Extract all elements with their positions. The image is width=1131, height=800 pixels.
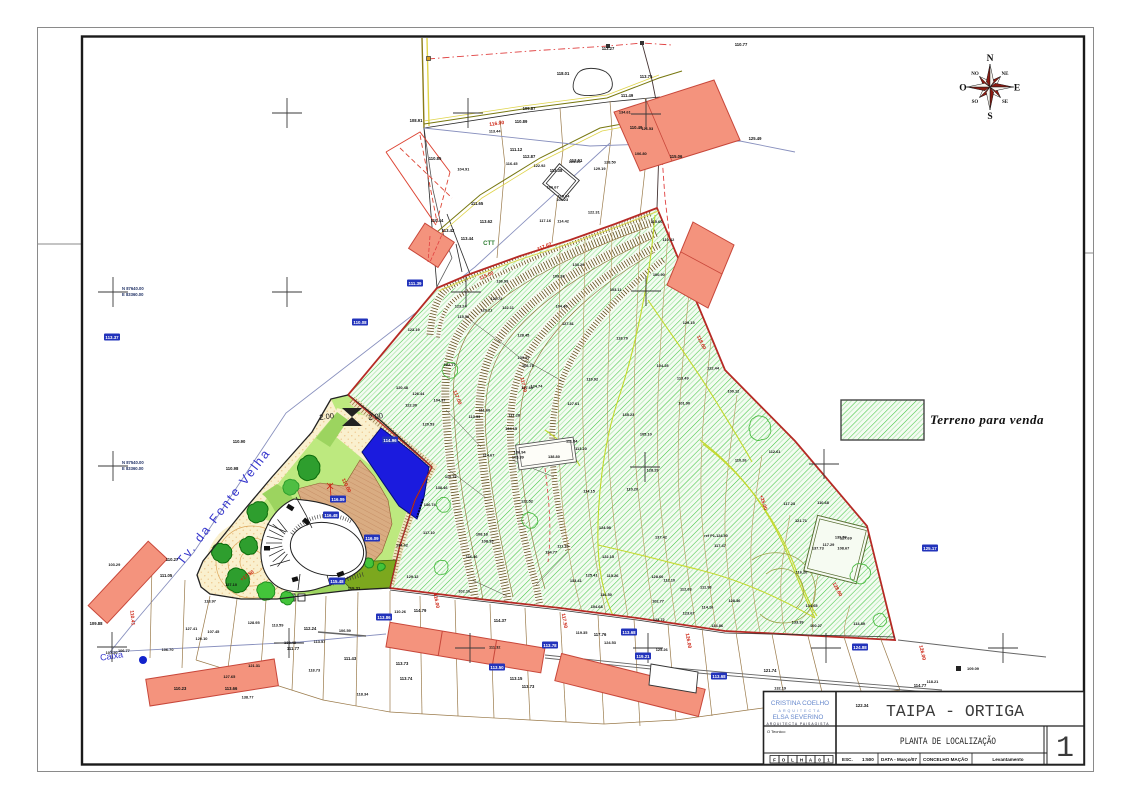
svg-text:122.34: 122.34 (856, 703, 869, 708)
svg-text:116.50: 116.50 (600, 592, 612, 597)
svg-text:113.15: 113.15 (510, 676, 523, 681)
svg-text:110.49: 110.49 (630, 125, 643, 130)
svg-text:113.38: 113.38 (550, 168, 563, 173)
svg-text:105.39: 105.39 (512, 454, 525, 459)
svg-text:122.15: 122.15 (602, 554, 615, 559)
svg-text:116.09: 116.09 (331, 497, 345, 502)
svg-text:113.37: 113.37 (105, 335, 119, 340)
svg-text:114.67: 114.67 (483, 452, 495, 457)
svg-text:113.42: 113.42 (442, 228, 455, 233)
svg-text:108.35: 108.35 (482, 538, 495, 543)
svg-text:Terreno para venda: Terreno para venda (930, 412, 1044, 427)
svg-text:104.68: 104.68 (591, 604, 604, 609)
svg-text:104.40: 104.40 (556, 304, 568, 309)
svg-text:120.72: 120.72 (490, 296, 503, 301)
svg-text:O: O (959, 84, 966, 94)
svg-text:117.16: 117.16 (539, 218, 552, 223)
svg-text:113.86: 113.86 (377, 615, 391, 620)
svg-text:134.61: 134.61 (619, 110, 632, 115)
svg-text:113.78: 113.78 (543, 643, 557, 648)
svg-text:107.45: 107.45 (207, 629, 220, 634)
svg-text:104.37: 104.37 (434, 397, 446, 402)
svg-text:112.63: 112.63 (680, 586, 693, 591)
svg-text:110.89: 110.89 (515, 119, 528, 124)
svg-text:120.21: 120.21 (480, 307, 493, 312)
svg-text:106.67: 106.67 (547, 185, 559, 190)
svg-text:100.90: 100.90 (653, 272, 665, 277)
svg-text:138.80: 138.80 (548, 454, 560, 459)
svg-text:113.74: 113.74 (400, 676, 413, 681)
svg-text:128.95: 128.95 (248, 620, 261, 625)
svg-text:135.23: 135.23 (622, 412, 635, 417)
svg-text:134.77: 134.77 (545, 550, 557, 555)
svg-text:CRISTINA COELHO: CRISTINA COELHO (771, 700, 829, 707)
svg-text:111.43: 111.43 (344, 656, 357, 661)
svg-text:133.48: 133.48 (284, 640, 297, 645)
svg-text:Levantamento: Levantamento (992, 757, 1023, 762)
svg-text:138.77: 138.77 (242, 695, 254, 700)
svg-text:110.26: 110.26 (735, 458, 748, 463)
svg-text:111.65: 111.65 (471, 201, 484, 206)
svg-text:ref P1-124.50: ref P1-124.50 (704, 534, 727, 538)
svg-text:128.60: 128.60 (651, 574, 663, 579)
svg-text:114.15: 114.15 (583, 488, 596, 493)
svg-text:109.88: 109.88 (90, 621, 103, 626)
svg-text:110.20: 110.20 (626, 487, 638, 492)
svg-text:114.96: 114.96 (383, 438, 397, 443)
svg-text:111.05: 111.05 (160, 573, 173, 578)
svg-text:114.37: 114.37 (494, 618, 507, 623)
svg-text:100.27: 100.27 (810, 623, 822, 628)
svg-text:105.10: 105.10 (640, 432, 652, 437)
svg-text:102.77: 102.77 (652, 598, 664, 603)
svg-text:110.90: 110.90 (233, 439, 246, 444)
svg-text:122.31: 122.31 (588, 209, 601, 214)
svg-text:122.44: 122.44 (707, 366, 720, 371)
svg-text:108.78: 108.78 (522, 363, 535, 368)
svg-text:1: 1 (1056, 732, 1074, 766)
svg-text:F: F (773, 758, 776, 763)
svg-text:115.26: 115.26 (607, 573, 620, 578)
svg-text:110.42: 110.42 (663, 237, 676, 242)
svg-text:124.98: 124.98 (599, 525, 612, 530)
svg-text:DATA - Março/07: DATA - Março/07 (881, 757, 917, 762)
svg-text:111.98: 111.98 (700, 585, 712, 590)
svg-text:127.81: 127.81 (562, 321, 575, 326)
svg-text:ESC.: ESC. (842, 757, 853, 762)
svg-text:127.69: 127.69 (840, 536, 853, 541)
svg-text:118.01: 118.01 (557, 71, 570, 76)
svg-text:138.46: 138.46 (436, 485, 449, 490)
svg-text:121.74: 121.74 (764, 668, 777, 673)
svg-text:128.36: 128.36 (728, 598, 741, 603)
svg-text:NO: NO (971, 72, 979, 77)
svg-text:134.15: 134.15 (505, 426, 518, 431)
svg-text:111.12: 111.12 (510, 147, 523, 152)
svg-text:116.45: 116.45 (506, 161, 519, 166)
svg-text:133.39: 133.39 (792, 620, 805, 625)
svg-text:113.62: 113.62 (480, 219, 493, 224)
svg-text:129.19: 129.19 (594, 166, 607, 171)
svg-text:111.77: 111.77 (287, 646, 300, 651)
svg-text:110.26: 110.26 (394, 609, 407, 614)
svg-text:113.49: 113.49 (677, 376, 690, 381)
svg-text:113.27: 113.27 (602, 46, 615, 51)
svg-text:E: E (1014, 84, 1020, 94)
svg-text:111.49: 111.49 (621, 93, 634, 98)
svg-text:110.27: 110.27 (166, 557, 179, 562)
svg-text:127.60: 127.60 (521, 385, 533, 390)
svg-text:134.65: 134.65 (806, 603, 819, 608)
svg-text:115.64: 115.64 (558, 194, 571, 199)
svg-text:102.10: 102.10 (458, 589, 470, 594)
svg-text:118.70: 118.70 (616, 335, 628, 340)
svg-text:127.65: 127.65 (223, 674, 236, 679)
svg-text:1:500: 1:500 (862, 757, 874, 762)
svg-text:104.25: 104.25 (657, 363, 670, 368)
svg-text:L: L (791, 758, 794, 763)
svg-text:112.61: 112.61 (769, 449, 782, 454)
svg-text:112.87: 112.87 (523, 154, 536, 159)
svg-text:113.44: 113.44 (461, 236, 474, 241)
svg-text:N 87640.00: N 87640.00 (122, 286, 144, 291)
svg-text:128.50: 128.50 (604, 160, 616, 165)
svg-text:116.20: 116.20 (796, 570, 808, 575)
svg-text:123.67: 123.67 (683, 610, 695, 615)
svg-text:113.73: 113.73 (522, 684, 535, 689)
svg-text:N: N (987, 54, 994, 64)
svg-text:114.16: 114.16 (702, 604, 715, 609)
svg-text:137.42: 137.42 (655, 534, 668, 539)
svg-text:NE: NE (1002, 72, 1010, 77)
svg-text:119.35: 119.35 (576, 630, 589, 635)
svg-text:122.11: 122.11 (502, 305, 515, 310)
svg-text:115.60: 115.60 (651, 219, 663, 224)
svg-text:126.53: 126.53 (641, 126, 654, 131)
svg-text:126.44: 126.44 (412, 391, 425, 396)
svg-text:124.88: 124.88 (853, 645, 867, 650)
svg-text:120.48: 120.48 (396, 385, 409, 390)
svg-text:110.44: 110.44 (431, 218, 444, 223)
svg-text:128.45: 128.45 (517, 333, 530, 338)
svg-text:SO: SO (972, 100, 979, 105)
svg-text:112.24: 112.24 (304, 626, 317, 631)
svg-text:110.98: 110.98 (226, 466, 239, 471)
svg-text:113.51: 113.51 (570, 158, 583, 163)
svg-text:114.77: 114.77 (914, 683, 927, 688)
svg-text:106.70: 106.70 (162, 647, 174, 652)
svg-text:ELSA SEVERINO: ELSA SEVERINO (773, 714, 824, 721)
svg-text:122.77: 122.77 (444, 362, 456, 367)
svg-text:117.76: 117.76 (594, 632, 607, 637)
svg-text:133.20: 133.20 (572, 262, 584, 267)
svg-text:111.32: 111.32 (489, 645, 501, 650)
svg-text:103.11: 103.11 (610, 287, 623, 292)
svg-text:120.10: 120.10 (196, 636, 208, 641)
svg-text:O Tecnico:: O Tecnico: (767, 729, 786, 734)
svg-text:103.29: 103.29 (108, 562, 121, 567)
svg-text:113.44: 113.44 (489, 128, 502, 133)
svg-text:115.06: 115.06 (670, 154, 683, 159)
svg-text:139.97: 139.97 (518, 355, 530, 360)
svg-text:122.92: 122.92 (534, 163, 547, 168)
svg-text:TAIPA - ORTIGA: TAIPA - ORTIGA (886, 703, 1025, 722)
svg-text:104.91: 104.91 (457, 167, 470, 172)
svg-text:122.30: 122.30 (405, 403, 417, 408)
svg-text:136.99: 136.99 (496, 278, 509, 283)
svg-text:110.08: 110.08 (353, 320, 367, 325)
svg-text:110.75: 110.75 (445, 474, 458, 479)
svg-text:106.77: 106.77 (118, 648, 130, 653)
svg-text:125.49: 125.49 (749, 136, 762, 141)
svg-text:129.15: 129.15 (683, 320, 696, 325)
svg-text:117.29: 117.29 (823, 542, 836, 547)
svg-text:134.86: 134.86 (711, 623, 724, 628)
svg-text:109.09: 109.09 (967, 666, 980, 671)
svg-text:113.20: 113.20 (575, 446, 587, 451)
svg-text:113.75: 113.75 (640, 74, 653, 79)
svg-text:115.48: 115.48 (330, 579, 344, 584)
svg-text:118.21: 118.21 (927, 679, 940, 684)
svg-text:117.10: 117.10 (423, 530, 435, 535)
svg-text:125.17: 125.17 (923, 546, 937, 551)
svg-text:114.79: 114.79 (414, 608, 427, 613)
svg-text:100.12: 100.12 (727, 388, 740, 393)
svg-text:119.21: 119.21 (636, 654, 650, 659)
svg-text:S: S (987, 112, 992, 122)
svg-text:122.52: 122.52 (521, 498, 534, 503)
svg-text:111.60: 111.60 (479, 407, 490, 412)
svg-text:E 83360.00: E 83360.00 (122, 466, 144, 471)
svg-text:108.91: 108.91 (410, 118, 423, 123)
svg-text:121.31: 121.31 (248, 663, 261, 668)
svg-text:117.47: 117.47 (714, 543, 726, 548)
svg-text:CTT: CTT (483, 241, 495, 247)
svg-text:101.90: 101.90 (678, 400, 690, 405)
svg-text:111.70: 111.70 (557, 543, 568, 548)
svg-text:108.67: 108.67 (837, 546, 849, 551)
svg-text:H: H (800, 758, 803, 763)
svg-text:116.09: 116.09 (365, 536, 379, 541)
svg-text:125.26: 125.26 (656, 647, 669, 652)
svg-text:128.29: 128.29 (647, 467, 660, 472)
svg-text:113.68: 113.68 (622, 630, 636, 635)
svg-text:ARQUITECTA: ARQUITECTA (779, 709, 822, 713)
svg-text:E 83360.00: E 83360.00 (122, 292, 144, 297)
svg-text:132.19: 132.19 (774, 686, 787, 691)
svg-text:O: O (782, 758, 786, 763)
svg-text:127.61: 127.61 (567, 401, 580, 406)
svg-text:116.48: 116.48 (324, 513, 338, 518)
svg-text:123.72: 123.72 (653, 617, 666, 622)
svg-text:106.80: 106.80 (635, 151, 647, 156)
svg-text:133.41: 133.41 (570, 578, 583, 583)
svg-text:109.38: 109.38 (553, 274, 566, 279)
svg-text:117.23: 117.23 (783, 501, 796, 506)
svg-text:115.52: 115.52 (458, 314, 471, 319)
svg-text:136.74: 136.74 (424, 502, 437, 507)
svg-text:110.23: 110.23 (174, 686, 187, 691)
svg-text:113.53: 113.53 (469, 414, 482, 419)
svg-text:106.59: 106.59 (339, 628, 352, 633)
svg-text:ARQUITECTA PAISAGISTA: ARQUITECTA PAISAGISTA (766, 722, 829, 726)
svg-text:109.87: 109.87 (523, 106, 536, 111)
svg-text:111.28: 111.28 (509, 412, 521, 417)
svg-text:113.66: 113.66 (225, 686, 238, 691)
svg-text:115.31: 115.31 (348, 586, 361, 591)
svg-text:111.84: 111.84 (566, 439, 578, 444)
svg-text:CONCELHO MAÇÃO: CONCELHO MAÇÃO (923, 756, 968, 762)
svg-text:127.10: 127.10 (225, 582, 237, 587)
svg-text:137.73: 137.73 (812, 546, 825, 551)
svg-text:111.39: 111.39 (409, 281, 423, 286)
svg-text:119.92: 119.92 (586, 377, 599, 382)
svg-text:121.71: 121.71 (795, 518, 808, 523)
svg-text:124.53: 124.53 (604, 640, 617, 645)
svg-text:114.42: 114.42 (557, 218, 570, 223)
svg-text:110.68: 110.68 (817, 500, 830, 505)
svg-text:125.41: 125.41 (586, 573, 599, 578)
svg-text:PLANTA DE LOCALIZAÇÃO: PLANTA DE LOCALIZAÇÃO (900, 735, 996, 748)
svg-text:N 87540.00: N 87540.00 (122, 460, 144, 465)
svg-text:113.57: 113.57 (314, 639, 326, 644)
svg-text:108.18: 108.18 (476, 531, 489, 536)
svg-text:112.10: 112.10 (663, 578, 675, 583)
svg-text:110.77: 110.77 (735, 42, 748, 47)
svg-text:113.50: 113.50 (490, 665, 504, 670)
svg-text:107.20: 107.20 (106, 650, 118, 655)
svg-text:116.36: 116.36 (466, 554, 479, 559)
svg-text:118.97: 118.97 (204, 599, 216, 604)
svg-text:127.41: 127.41 (185, 626, 198, 631)
svg-text:114.89: 114.89 (853, 621, 866, 626)
svg-text:123.24: 123.24 (455, 304, 468, 309)
svg-text:129.12: 129.12 (407, 574, 420, 579)
svg-text:113.73: 113.73 (396, 661, 409, 666)
svg-text:SE: SE (1002, 100, 1009, 105)
svg-text:113.59: 113.59 (272, 623, 285, 628)
svg-text:120.53: 120.53 (422, 422, 435, 427)
svg-text:118.34: 118.34 (357, 691, 370, 696)
svg-text:110.85: 110.85 (429, 156, 442, 161)
svg-text:123.19: 123.19 (408, 327, 421, 332)
svg-text:134.42: 134.42 (396, 543, 409, 548)
svg-text:113.68: 113.68 (712, 674, 726, 679)
svg-text:118.73: 118.73 (308, 668, 321, 673)
